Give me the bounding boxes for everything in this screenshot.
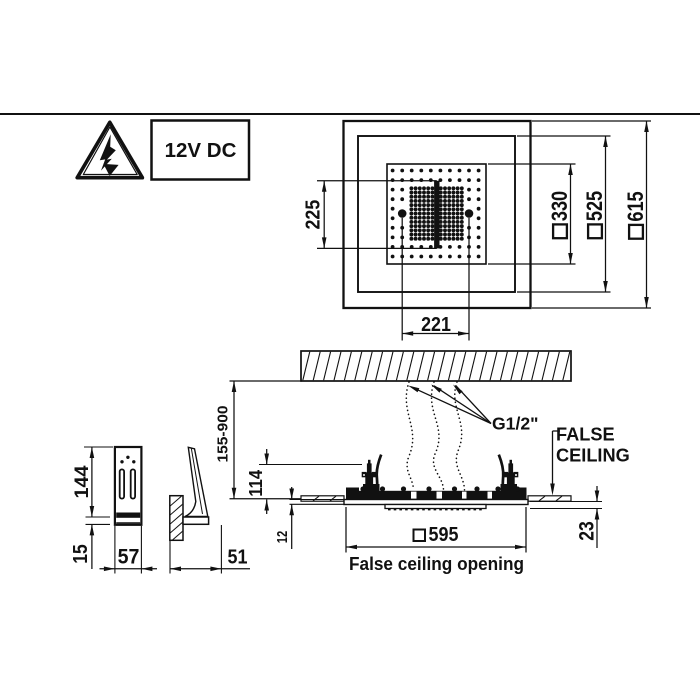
svg-text:225: 225 <box>301 200 324 230</box>
svg-text:12V DC: 12V DC <box>165 139 237 162</box>
svg-text:155-900: 155-900 <box>216 406 232 463</box>
svg-text:FALSE: FALSE <box>556 425 615 445</box>
svg-text:57: 57 <box>118 546 140 569</box>
svg-text:15: 15 <box>70 544 92 564</box>
svg-text:CEILING: CEILING <box>556 446 630 466</box>
svg-text:615: 615 <box>623 191 648 221</box>
svg-text:330: 330 <box>547 191 572 221</box>
svg-text:114: 114 <box>245 469 266 496</box>
svg-text:144: 144 <box>71 465 93 498</box>
svg-text:221: 221 <box>421 313 451 336</box>
svg-text:False ceiling opening: False ceiling opening <box>349 554 524 574</box>
svg-text:G1/2": G1/2" <box>492 414 538 434</box>
svg-text:595: 595 <box>429 523 459 546</box>
svg-text:23: 23 <box>576 521 599 541</box>
svg-text:51: 51 <box>228 546 248 569</box>
svg-text:12: 12 <box>274 531 291 544</box>
svg-text:525: 525 <box>582 191 607 221</box>
